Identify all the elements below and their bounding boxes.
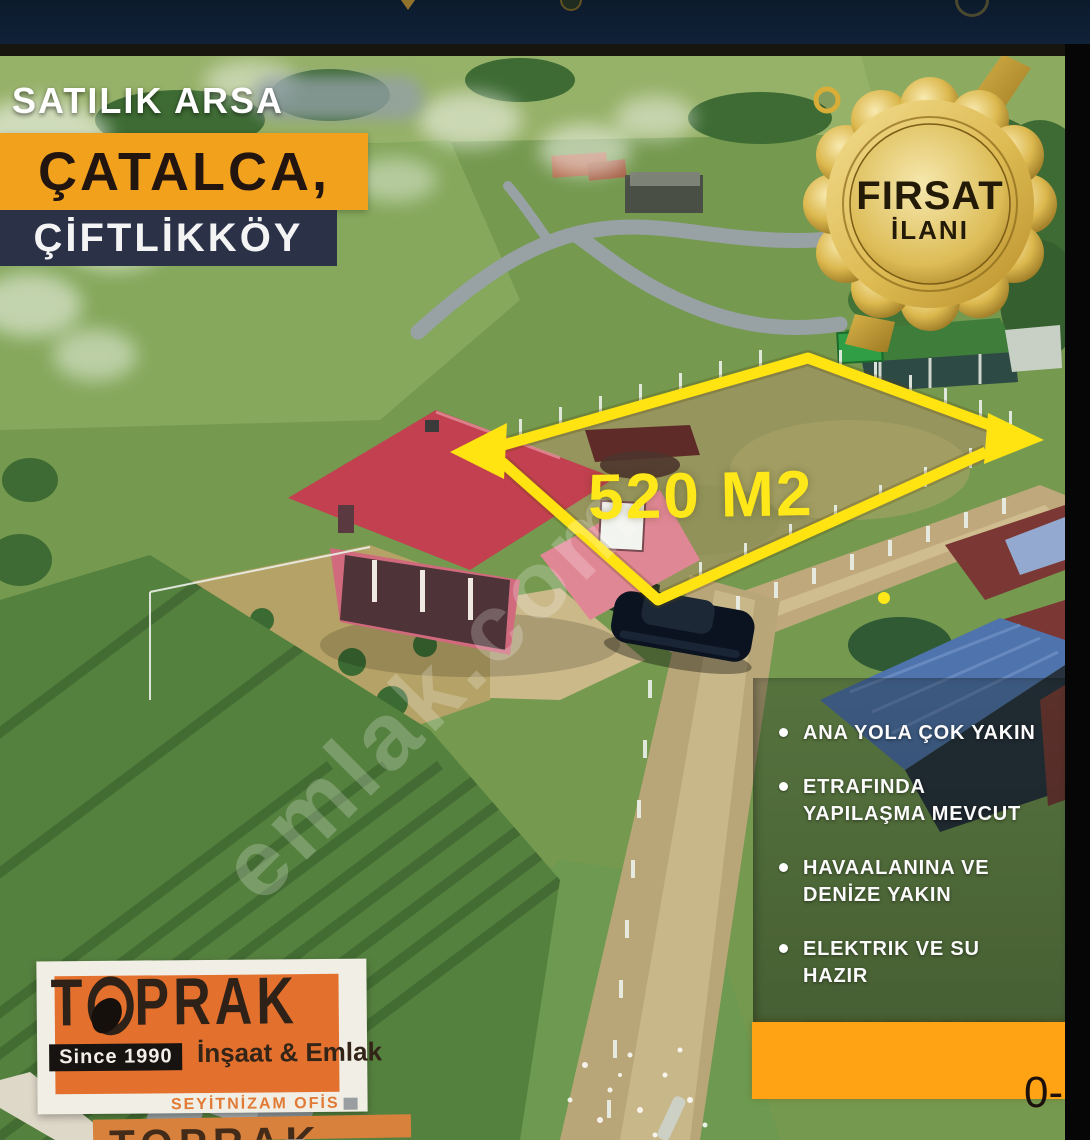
phone-number-partial: 0- <box>1024 1068 1063 1118</box>
bullet-icon <box>779 782 788 791</box>
bullet-icon <box>779 944 788 953</box>
village-label: ÇİFTLİKKÖY <box>34 216 304 261</box>
agency-office: SEYİTNİZAM OFİS <box>171 1095 358 1115</box>
features-list: ANA YOLA ÇOK YAKIN ETRAFINDA YAPILAŞMA M… <box>753 678 1065 1044</box>
feature-item: ETRAFINDA YAPILAŞMA MEVCUT <box>779 774 1051 828</box>
agency-name-suffix: PRAK <box>134 964 298 1040</box>
stamp-icon <box>344 1097 358 1109</box>
agency-office-label: SEYİTNİZAM OFİS <box>171 1095 340 1113</box>
features-panel: ANA YOLA ÇOK YAKIN ETRAFINDA YAPILAŞMA M… <box>753 678 1065 1022</box>
circle-icon <box>560 0 582 11</box>
location-banner-district: ÇATALCA, <box>0 133 368 210</box>
dove-icon <box>87 993 126 1037</box>
bullet-icon <box>779 863 788 872</box>
top-divider <box>0 44 1090 56</box>
agency-name-prefix: T <box>50 966 86 1041</box>
right-crop-bar <box>1065 44 1090 1140</box>
agency-logo-card: TPRAK Since 1990 İnşaat & Emlak SEYİTNİZ… <box>36 959 367 1115</box>
dove-ring-icon <box>87 976 134 1035</box>
district-label: ÇATALCA, <box>38 141 330 203</box>
chevron-down-icon <box>396 0 420 10</box>
seal-line1: FIRSAT <box>830 176 1030 216</box>
feature-item: HAVAALANINA VE DENİZE YAKIN <box>779 855 1051 909</box>
agency-logo-partial: TOPRAK <box>93 1114 411 1140</box>
agency-since-badge: Since 1990 <box>49 1043 183 1071</box>
feature-label: ANA YOLA ÇOK YAKIN <box>803 720 1036 747</box>
bullet-icon <box>779 728 788 737</box>
location-banner-village: ÇİFTLİKKÖY <box>0 210 337 266</box>
listing-title: SATILIK ARSA <box>12 80 284 122</box>
agency-tagline: İnşaat & Emlak <box>197 1036 382 1069</box>
listing-ad: emlak.com 520 M2 SATILIK ARSA ÇATALCA, Ç… <box>0 0 1090 1140</box>
feature-label: ELEKTRIK VE SU HAZIR <box>803 936 1049 990</box>
seal-line2: İLANI <box>830 216 1030 246</box>
feature-label: ETRAFINDA YAPILAŞMA MEVCUT <box>803 774 1049 828</box>
ring-icon <box>955 0 989 17</box>
feature-item: ANA YOLA ÇOK YAKIN <box>779 720 1051 747</box>
agency-subline: Since 1990 İnşaat & Emlak <box>49 1036 382 1071</box>
agency-name-partial: TOPRAK <box>109 1118 322 1140</box>
top-app-bar <box>0 0 1090 44</box>
seal-text: FIRSAT İLANI <box>830 176 1030 246</box>
agency-name: TPRAK <box>50 963 298 1042</box>
feature-item: ELEKTRIK VE SU HAZIR <box>779 936 1051 990</box>
contact-bar <box>752 1022 1065 1099</box>
plot-area-label: 520 M2 <box>587 456 814 534</box>
feature-label: HAVAALANINA VE DENİZE YAKIN <box>803 855 1049 909</box>
